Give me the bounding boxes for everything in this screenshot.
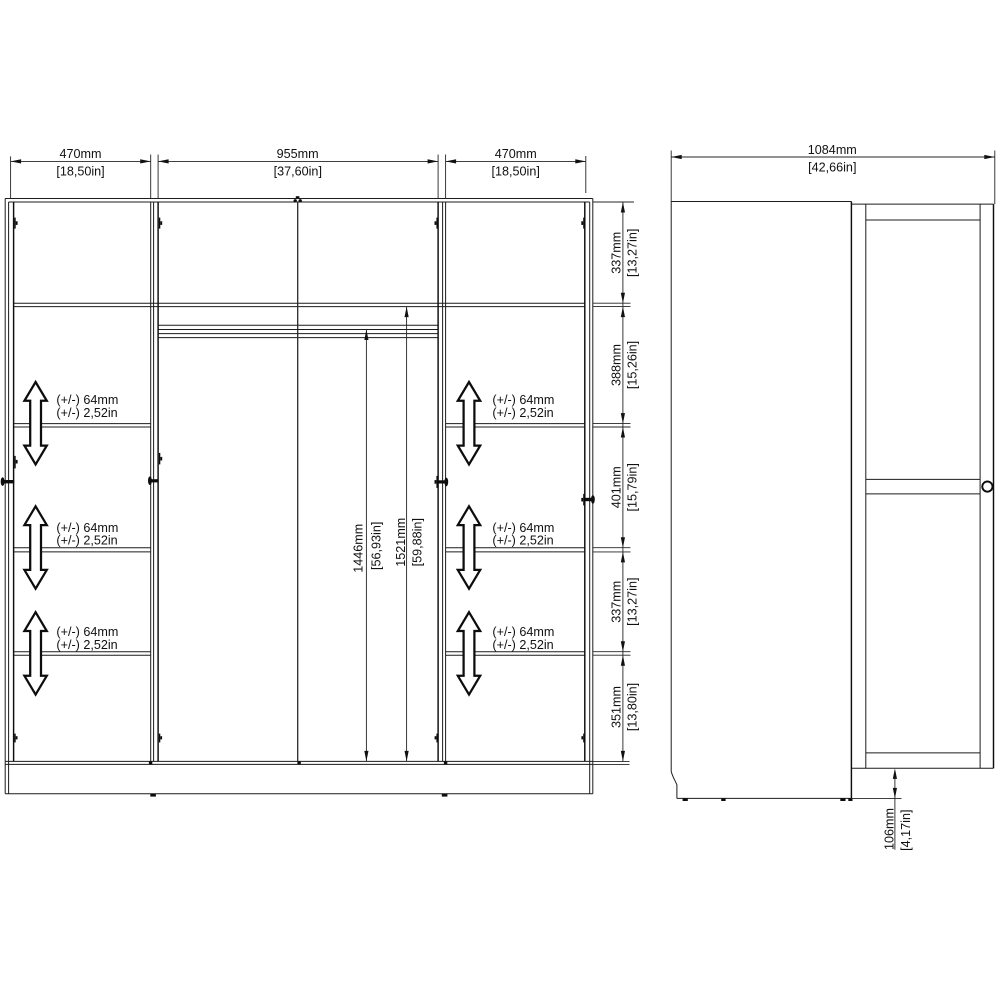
svg-text:337mm: 337mm [609,232,623,274]
svg-text:(+/-) 64mm: (+/-) 64mm [56,393,118,407]
svg-text:(+/-) 2,52in: (+/-) 2,52in [492,638,553,652]
svg-text:401mm: 401mm [609,466,623,508]
svg-text:(+/-) 2,52in: (+/-) 2,52in [492,406,553,420]
svg-text:[37,60in]: [37,60in] [274,164,322,178]
svg-text:351mm: 351mm [609,686,623,728]
svg-text:1521mm: 1521mm [394,518,408,567]
svg-text:470mm: 470mm [60,147,102,161]
svg-text:[59,88in]: [59,88in] [411,518,425,566]
svg-text:[42,66in]: [42,66in] [808,160,856,174]
svg-text:[4,17in]: [4,17in] [899,810,913,851]
svg-text:106mm: 106mm [883,808,897,850]
svg-text:[13,80in]: [13,80in] [626,683,640,731]
svg-text:1446mm: 1446mm [352,524,366,573]
svg-text:[13,27in]: [13,27in] [626,229,640,277]
svg-text:[18,50in]: [18,50in] [56,164,104,178]
svg-text:337mm: 337mm [609,581,623,623]
svg-text:[15,79in]: [15,79in] [626,463,640,511]
svg-text:(+/-) 64mm: (+/-) 64mm [492,393,554,407]
svg-text:(+/-) 2,52in: (+/-) 2,52in [492,534,553,548]
svg-text:(+/-) 64mm: (+/-) 64mm [56,625,118,639]
svg-text:(+/-) 2,52in: (+/-) 2,52in [56,638,117,652]
svg-text:[56,93in]: [56,93in] [370,522,384,570]
svg-text:[15,26in]: [15,26in] [626,341,640,389]
svg-text:(+/-) 2,52in: (+/-) 2,52in [56,406,117,420]
svg-text:[18,50in]: [18,50in] [492,164,540,178]
svg-text:(+/-) 64mm: (+/-) 64mm [492,625,554,639]
svg-text:955mm: 955mm [277,147,319,161]
svg-text:(+/-) 2,52in: (+/-) 2,52in [56,534,117,548]
svg-text:1084mm: 1084mm [808,143,857,157]
svg-text:388mm: 388mm [609,344,623,386]
svg-text:470mm: 470mm [495,147,537,161]
svg-text:[13,27in]: [13,27in] [626,578,640,626]
